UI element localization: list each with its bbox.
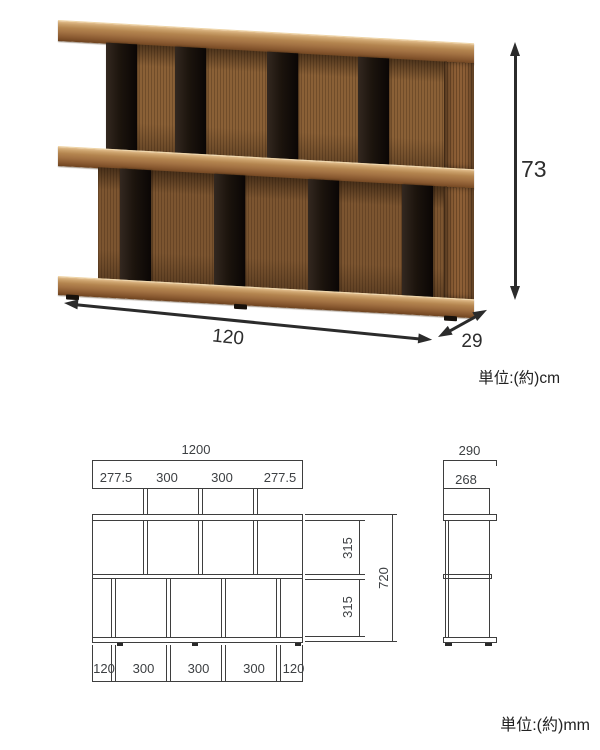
- width-value-cm: 120: [197, 324, 259, 352]
- front-lower-seg-label: 120: [274, 662, 314, 676]
- front-lower-tier: [92, 579, 304, 637]
- lower-tier-divider: [214, 174, 245, 287]
- arrow-right-icon: [418, 333, 433, 344]
- side-top-board: [443, 514, 497, 521]
- front-lower-divider: [166, 579, 171, 637]
- upper-height-dim-line: [359, 521, 360, 574]
- upper-tier-back-panel: [106, 43, 474, 170]
- unit-note-mm: 単位:(約)mm: [500, 711, 590, 735]
- overall-height-label: 720: [377, 558, 391, 598]
- height-dimension-arrow: [509, 42, 521, 300]
- front-lower-divider: [221, 579, 226, 637]
- extension-line: [221, 645, 226, 681]
- right-side-panel: [444, 187, 474, 300]
- front-upper-divider: [198, 521, 203, 574]
- side-foot: [485, 643, 492, 647]
- lower-tier-divider: [308, 179, 339, 292]
- front-upper-seg-label: 300: [142, 471, 192, 485]
- side-inner-depth-label: 268: [441, 473, 491, 487]
- product-photo-section: [58, 20, 478, 340]
- front-lower-divider: [276, 579, 281, 637]
- shelf-unit-photo: [58, 20, 474, 323]
- arrow-down-icon: [510, 286, 520, 300]
- front-upper-seg-label: 300: [197, 471, 247, 485]
- side-inner-depth-dim-lines: [443, 488, 491, 515]
- extension-line: [305, 574, 365, 575]
- unit-note-cm: 単位:(約)cm: [478, 366, 560, 388]
- extension-line: [305, 520, 365, 521]
- upper-tier-divider: [106, 43, 137, 151]
- front-upper-seg-label: 277.5: [91, 471, 141, 485]
- lower-tier-back-panel: [98, 167, 474, 299]
- extension-line: [253, 489, 258, 515]
- right-side-panel: [444, 62, 474, 170]
- upper-tier-divider: [267, 52, 298, 160]
- lower-height-dim-line: [359, 579, 360, 637]
- upper-inner-height-label: 315: [341, 528, 355, 568]
- extension-line: [305, 579, 365, 580]
- lower-tier-divider: [120, 168, 151, 281]
- upper-tier-divider: [175, 47, 206, 155]
- side-foot: [445, 643, 452, 647]
- front-lower-seg-label: 300: [179, 662, 219, 676]
- front-lower-seg-label: 300: [124, 662, 164, 676]
- front-lower-divider: [111, 579, 116, 637]
- extension-line: [143, 489, 148, 515]
- overall-height-dim-line: [392, 515, 393, 642]
- side-middle-shelf: [443, 574, 492, 580]
- extension-line: [166, 645, 171, 681]
- lower-tier-divider: [402, 184, 433, 297]
- product-dimension-figure: 73 120 29 単位:(約)cm 1200 277.5 300 300 27…: [0, 0, 600, 750]
- depth-value-cm: 29: [452, 331, 492, 353]
- extension-line: [198, 489, 203, 515]
- shelf-foot: [234, 304, 247, 310]
- front-lower-seg-label: 300: [234, 662, 274, 676]
- upper-tier-divider: [358, 57, 389, 165]
- side-depth-label: 290: [445, 444, 495, 458]
- extension-line: [305, 636, 365, 637]
- front-upper-divider: [253, 521, 258, 574]
- lower-inner-height-label: 315: [341, 587, 355, 627]
- front-upper-divider: [143, 521, 148, 574]
- dim-tick: [496, 460, 497, 466]
- height-value-cm: 73: [521, 156, 547, 183]
- extension-line: [305, 514, 397, 515]
- front-overall-width-label: 1200: [166, 443, 226, 457]
- front-upper-seg-label: 277.5: [255, 471, 305, 485]
- extension-line: [305, 641, 397, 642]
- front-lower-seg-label: 120: [84, 662, 124, 676]
